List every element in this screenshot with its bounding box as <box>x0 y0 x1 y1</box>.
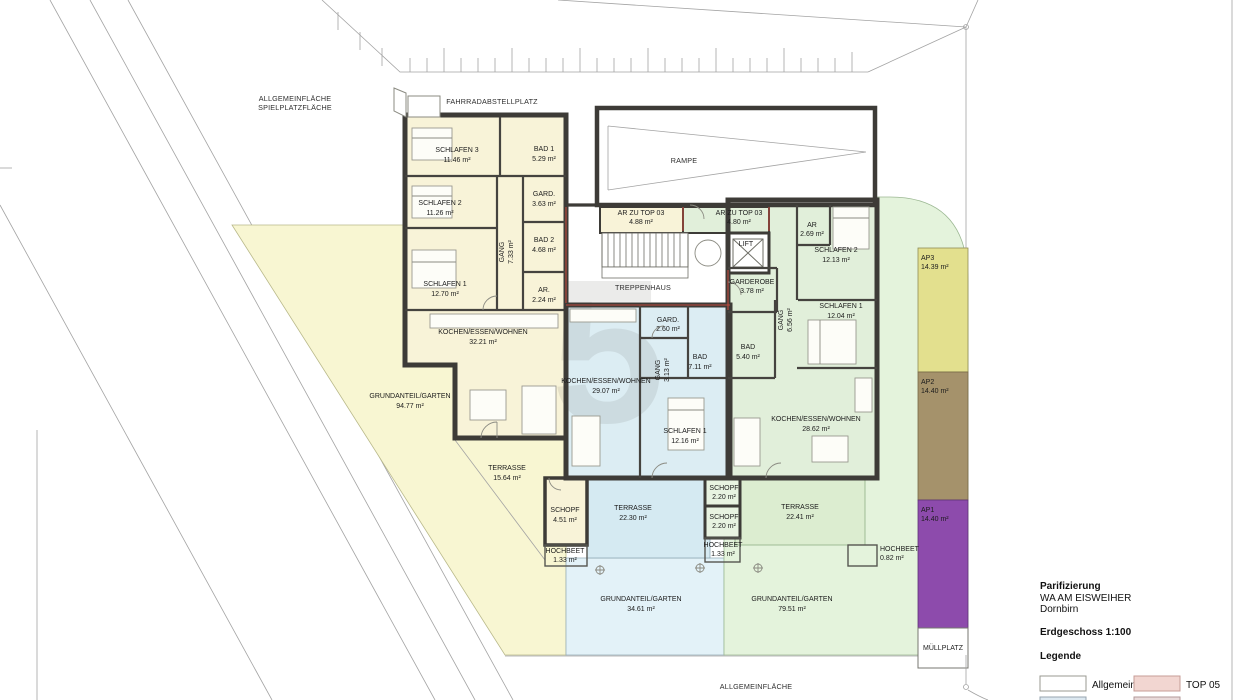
svg-text:AR ZU TOP 03: AR ZU TOP 03 <box>618 210 665 217</box>
fence-ticks-diagonal <box>338 12 382 66</box>
plan-project: WA AM EISWEIHER <box>1040 593 1131 604</box>
svg-text:SCHLAFEN 1: SCHLAFEN 1 <box>819 303 862 310</box>
label-spielplatzflaeche: SPIELPLATZFLÄCHE <box>258 103 332 112</box>
legend-label-allgemein: Allgemein <box>1092 680 1136 691</box>
legend-swatch-allgemein <box>1040 676 1086 691</box>
svg-text:94.77 m²: 94.77 m² <box>396 403 424 410</box>
terrace-middle <box>587 478 710 558</box>
plan-floor-scale: Erdgeschoss 1:100 <box>1040 627 1132 638</box>
svg-text:BAD: BAD <box>741 344 755 351</box>
svg-text:2.20 m²: 2.20 m² <box>712 523 736 530</box>
svg-text:GANG: GANG <box>778 310 785 331</box>
svg-text:1.33 m²: 1.33 m² <box>711 551 735 558</box>
svg-text:GRUNDANTEIL/GARTEN: GRUNDANTEIL/GARTEN <box>751 596 832 603</box>
svg-text:4.80 m²: 4.80 m² <box>727 219 751 226</box>
svg-text:14.40 m²: 14.40 m² <box>921 388 949 395</box>
svg-text:TERRASSE: TERRASSE <box>781 504 819 511</box>
svg-text:28.62 m²: 28.62 m² <box>802 426 830 433</box>
fence-ticks-top <box>410 48 852 72</box>
site-diagonal-line <box>0 205 272 700</box>
label-muellplatz: MÜLLPLATZ <box>923 644 964 652</box>
svg-text:7.11 m²: 7.11 m² <box>688 364 712 371</box>
svg-text:12.04 m²: 12.04 m² <box>827 313 855 320</box>
svg-text:5.29 m²: 5.29 m² <box>532 156 556 163</box>
plan-city: Dornbirn <box>1040 604 1078 615</box>
legend-item-allgemein: Allgemein <box>1040 676 1136 691</box>
svg-text:GANG: GANG <box>655 360 662 381</box>
legend-swatch-top05 <box>1134 676 1180 691</box>
svg-text:12.70 m²: 12.70 m² <box>431 291 459 298</box>
svg-text:GRUNDANTEIL/GARTEN: GRUNDANTEIL/GARTEN <box>369 393 450 400</box>
label-allgemeinflaeche-bottom: ALLGEMEINFLÄCHE <box>720 682 793 691</box>
svg-text:79.51 m²: 79.51 m² <box>778 606 806 613</box>
svg-text:TERRASSE: TERRASSE <box>614 505 652 512</box>
svg-text:2.69 m²: 2.69 m² <box>800 231 824 238</box>
schopf-middle-upper <box>705 478 740 506</box>
svg-text:15.64 m²: 15.64 m² <box>493 475 521 482</box>
svg-text:0.82 m²: 0.82 m² <box>880 555 904 562</box>
svg-text:HOCHBEET: HOCHBEET <box>880 546 920 553</box>
legend-label-top05: TOP 05 <box>1186 680 1221 691</box>
svg-text:AR ZU TOP 03: AR ZU TOP 03 <box>716 210 763 217</box>
svg-text:4.88 m²: 4.88 m² <box>629 219 653 226</box>
svg-text:BAD 2: BAD 2 <box>534 237 554 244</box>
bike-storage <box>394 88 440 117</box>
plan-title: Parifizierung <box>1040 581 1101 592</box>
legend-item-top05: TOP 05 <box>1134 676 1221 691</box>
svg-text:SCHLAFEN 2: SCHLAFEN 2 <box>814 247 857 254</box>
svg-text:11.46 m²: 11.46 m² <box>443 157 471 164</box>
svg-text:BAD 1: BAD 1 <box>534 146 554 153</box>
title-block: Parifizierung WA AM EISWEIHER Dornbirn E… <box>1040 581 1221 700</box>
label-allgemeinflaeche-1: ALLGEMEINFLÄCHE <box>259 94 332 103</box>
svg-text:4.68 m²: 4.68 m² <box>532 247 556 254</box>
svg-text:SCHLAFEN 2: SCHLAFEN 2 <box>418 200 461 207</box>
svg-text:34.61 m²: 34.61 m² <box>627 606 655 613</box>
site-top-boundary <box>322 0 868 72</box>
svg-text:22.41 m²: 22.41 m² <box>786 514 814 521</box>
label-lift: LIFT <box>739 241 754 248</box>
svg-text:AP3: AP3 <box>921 255 934 262</box>
svg-text:12.13 m²: 12.13 m² <box>822 257 850 264</box>
svg-text:32.21 m²: 32.21 m² <box>469 339 497 346</box>
svg-text:3.13 m²: 3.13 m² <box>664 357 671 381</box>
label-treppenhaus: TREPPENHAUS <box>615 283 671 292</box>
svg-text:SCHLAFEN 3: SCHLAFEN 3 <box>435 147 478 154</box>
turning-circle <box>695 240 721 266</box>
svg-text:HOCHBEET: HOCHBEET <box>704 542 744 549</box>
svg-text:AP1: AP1 <box>921 507 934 514</box>
svg-text:KOCHEN/ESSEN/WOHNEN: KOCHEN/ESSEN/WOHNEN <box>561 378 650 385</box>
svg-text:GARDEROBE: GARDEROBE <box>730 279 775 286</box>
svg-text:6.56 m²: 6.56 m² <box>787 307 794 331</box>
schopf-middle-lower <box>705 506 740 538</box>
svg-text:3.63 m²: 3.63 m² <box>532 201 556 208</box>
svg-text:SCHOPF: SCHOPF <box>709 514 738 521</box>
svg-text:SCHLAFEN 1: SCHLAFEN 1 <box>423 281 466 288</box>
svg-text:22.30 m²: 22.30 m² <box>619 515 647 522</box>
svg-text:KOCHEN/ESSEN/WOHNEN: KOCHEN/ESSEN/WOHNEN <box>438 329 527 336</box>
svg-text:11.26 m²: 11.26 m² <box>426 210 454 217</box>
svg-text:SCHLAFEN 1: SCHLAFEN 1 <box>663 428 706 435</box>
svg-text:29.07 m²: 29.07 m² <box>592 388 620 395</box>
svg-text:14.40 m²: 14.40 m² <box>921 516 949 523</box>
svg-text:12.16 m²: 12.16 m² <box>671 438 699 445</box>
svg-text:GRUNDANTEIL/GARTEN: GRUNDANTEIL/GARTEN <box>600 596 681 603</box>
svg-text:GARD.: GARD. <box>657 317 679 324</box>
svg-text:14.39 m²: 14.39 m² <box>921 264 949 271</box>
svg-text:HOCHBEET: HOCHBEET <box>546 548 586 555</box>
svg-text:AR: AR <box>807 222 817 229</box>
svg-text:AR.: AR. <box>538 287 550 294</box>
svg-text:TERRASSE: TERRASSE <box>488 465 526 472</box>
label-fahrradabstellplatz: FAHRRADABSTELLPLATZ <box>446 97 538 106</box>
label-rampe: RAMPE <box>671 156 698 165</box>
terrace-right <box>735 478 865 545</box>
svg-text:5.40 m²: 5.40 m² <box>736 354 760 361</box>
svg-text:1.33 m²: 1.33 m² <box>553 557 577 564</box>
svg-text:SCHOPF: SCHOPF <box>550 507 579 514</box>
svg-text:3.78 m²: 3.78 m² <box>740 288 764 295</box>
svg-text:SCHOPF: SCHOPF <box>709 485 738 492</box>
floorplan-canvas: 5 <box>0 0 1236 700</box>
staircase <box>602 233 688 278</box>
svg-text:GANG: GANG <box>499 242 506 263</box>
svg-text:2.60 m²: 2.60 m² <box>656 326 680 333</box>
legend-heading: Legende <box>1040 651 1082 662</box>
svg-text:BAD: BAD <box>693 354 707 361</box>
svg-text:2.20 m²: 2.20 m² <box>712 494 736 501</box>
svg-text:KOCHEN/ESSEN/WOHNEN: KOCHEN/ESSEN/WOHNEN <box>771 416 860 423</box>
svg-text:GARD.: GARD. <box>533 191 555 198</box>
svg-text:4.51 m²: 4.51 m² <box>553 517 577 524</box>
svg-text:AP2: AP2 <box>921 379 934 386</box>
svg-text:7.33 m²: 7.33 m² <box>508 239 515 263</box>
svg-text:2.24 m²: 2.24 m² <box>532 297 556 304</box>
